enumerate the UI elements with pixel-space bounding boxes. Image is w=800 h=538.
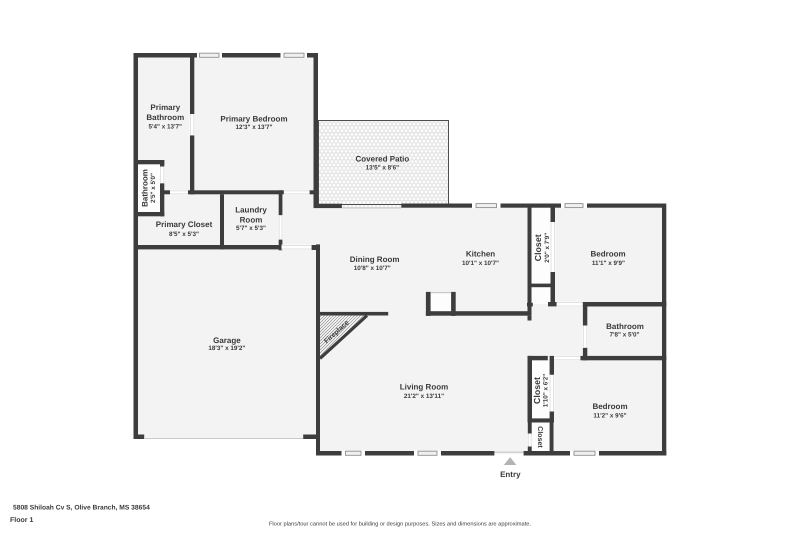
svg-text:10'8" x 10'7": 10'8" x 10'7"	[354, 265, 391, 272]
svg-text:5'4" x 13'7": 5'4" x 13'7"	[149, 124, 182, 131]
svg-text:Bathroom: Bathroom	[146, 113, 184, 122]
svg-text:Room: Room	[240, 216, 263, 225]
svg-text:7'8" x 5'0": 7'8" x 5'0"	[610, 332, 640, 339]
svg-text:10'1" x 10'7": 10'1" x 10'7"	[462, 260, 499, 267]
svg-text:Living Room: Living Room	[400, 382, 448, 391]
svg-text:5'7" x 5'3": 5'7" x 5'3"	[236, 225, 266, 232]
svg-text:Closet: Closet	[536, 426, 544, 448]
svg-text:12'3" x 13'7": 12'3" x 13'7"	[236, 124, 273, 131]
svg-text:Garage: Garage	[213, 336, 241, 345]
svg-text:Dining Room: Dining Room	[350, 255, 400, 264]
svg-text:5808 Shiloah Cv S, Olive Branc: 5808 Shiloah Cv S, Olive Branch, MS 3865…	[13, 505, 150, 512]
svg-text:8'5" x 5'3": 8'5" x 5'3"	[169, 231, 199, 238]
svg-text:21'2" x 13'11": 21'2" x 13'11"	[404, 393, 444, 400]
svg-text:Bathroom: Bathroom	[140, 169, 149, 207]
svg-text:Bathroom: Bathroom	[606, 322, 644, 331]
svg-text:18'3" x 19'2": 18'3" x 19'2"	[208, 345, 245, 352]
svg-text:Bedroom: Bedroom	[592, 402, 627, 411]
svg-text:Primary: Primary	[150, 103, 180, 112]
svg-text:Kitchen: Kitchen	[466, 249, 495, 258]
svg-text:Primary Bedroom: Primary Bedroom	[220, 114, 287, 123]
svg-text:Closet: Closet	[532, 377, 542, 404]
svg-text:13'5" x 8'6": 13'5" x 8'6"	[366, 164, 399, 171]
svg-text:2'0" x 7'9": 2'0" x 7'9"	[544, 233, 551, 263]
svg-text:Bedroom: Bedroom	[591, 249, 626, 258]
svg-text:11'1" x 9'9": 11'1" x 9'9"	[592, 260, 625, 267]
svg-text:Floor 1: Floor 1	[10, 516, 33, 524]
svg-text:Laundry: Laundry	[235, 205, 267, 214]
svg-text:Floor plans/tour cannot be use: Floor plans/tour cannot be used for buil…	[269, 520, 532, 527]
svg-text:2'5" x 5'0": 2'5" x 5'0"	[150, 173, 157, 203]
svg-text:Closet: Closet	[533, 234, 543, 261]
svg-text:1'10" x 6'2": 1'10" x 6'2"	[542, 374, 549, 407]
svg-text:Primary Closet: Primary Closet	[156, 220, 213, 229]
svg-text:Covered Patio: Covered Patio	[356, 155, 410, 164]
svg-text:Entry: Entry	[500, 470, 521, 479]
svg-text:11'2" x 9'6": 11'2" x 9'6"	[593, 413, 626, 420]
